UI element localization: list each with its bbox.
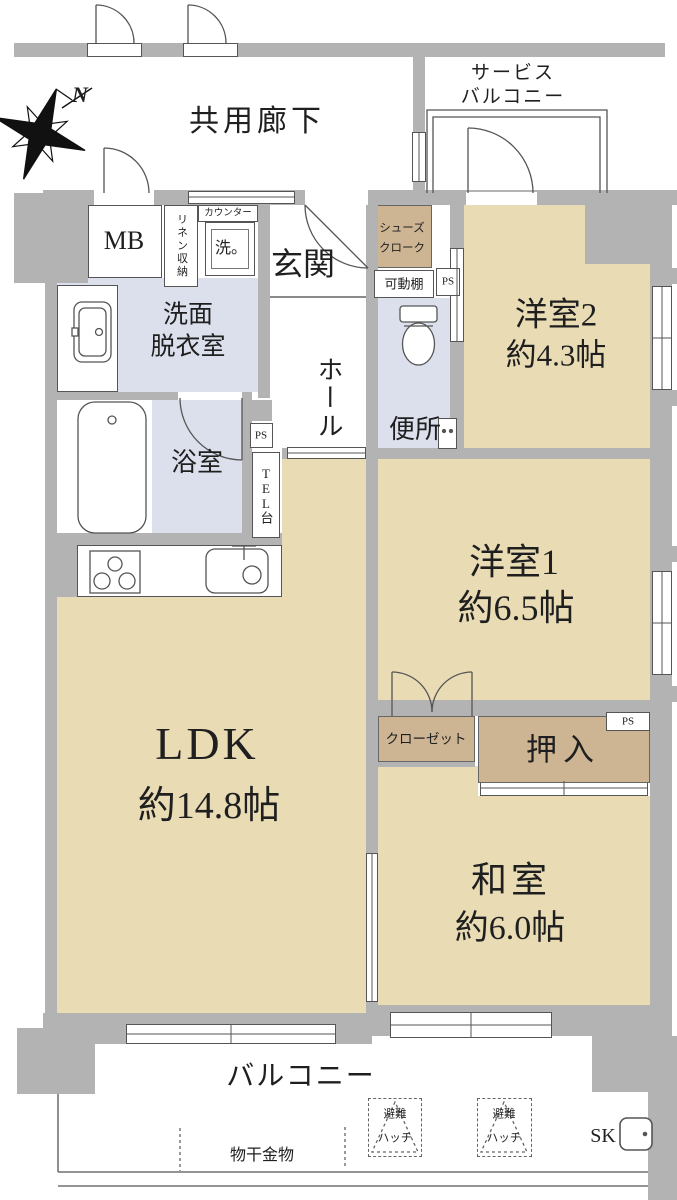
wall-kitchen-end <box>57 545 77 597</box>
service-balcony-door <box>468 128 533 193</box>
washer-label: 洗。 <box>215 241 247 257</box>
washitsu-ldk-sliding-door <box>366 853 378 1002</box>
escape-hatch-1 <box>368 1098 422 1157</box>
washitsu-balcony-window <box>390 1012 552 1038</box>
wall-right-stub3 <box>650 546 677 562</box>
service-balcony-label-1: サービス <box>471 64 555 83</box>
bath-door-opening <box>178 392 242 400</box>
floor-shoes-closet <box>372 205 432 268</box>
tel-stand-label: TEL台 <box>260 466 273 524</box>
wall-genkan-left <box>258 205 270 398</box>
vanity-counter <box>57 285 118 392</box>
wall-right-stub2 <box>650 390 677 406</box>
ldk-name-label: LDK <box>155 721 259 767</box>
hatch2-label-1: 避難 <box>493 1109 516 1121</box>
mb-door-opening <box>94 190 154 205</box>
wall-balcony-left-block <box>17 1028 95 1094</box>
washroom-label-1: 洗面 <box>163 303 213 328</box>
service-balcony-door-opening <box>466 192 537 205</box>
room1-name-label: 洋室1 <box>469 544 559 580</box>
counter-window <box>188 191 295 204</box>
floor-washitsu-a <box>372 766 478 1008</box>
bath-label: 浴室 <box>171 450 223 476</box>
compass-north-label: N <box>72 84 88 106</box>
wall-right-stub1 <box>650 268 677 284</box>
wall-hall-right <box>366 205 378 459</box>
corridor-door-2 <box>188 5 226 43</box>
ps-label-1: PS <box>442 277 454 288</box>
genkan-label: 玄関 <box>271 248 335 280</box>
sk-label: SK <box>590 1126 616 1146</box>
hall-ldk-sliding-door <box>287 447 366 459</box>
wall-ps-gray-box <box>252 400 272 421</box>
counter-label: カウンター <box>204 209 252 219</box>
corridor-door-1 <box>96 5 134 43</box>
balcony-label: バルコニー <box>226 1063 375 1091</box>
escape-hatch-2 <box>477 1098 532 1157</box>
corridor-door-opening-1 <box>87 43 142 57</box>
wall-balcony-right-block <box>592 1036 677 1092</box>
wall-kitchen-band <box>57 533 282 545</box>
balcony-railing <box>58 1094 648 1186</box>
service-balcony-label-2: バルコニー <box>461 88 566 107</box>
room1-window <box>652 571 672 675</box>
mb-label: MB <box>104 228 144 254</box>
corridor-door-opening-2 <box>183 43 238 57</box>
service-balcony-window <box>412 132 426 182</box>
shoes-closet-label-2: クローク <box>379 243 425 255</box>
oshiire-sliding-door <box>480 781 648 796</box>
floor-ldk-lobe <box>282 459 366 545</box>
washitsu-name-label: 和室 <box>471 862 551 898</box>
service-balcony-railing <box>427 110 607 193</box>
movable-shelf-label: 可動棚 <box>384 278 423 291</box>
washroom-label-2: 脱衣室 <box>150 335 225 360</box>
floor-bath-tub-area <box>57 400 152 535</box>
hall-label: ホール <box>315 356 341 440</box>
ldk-size-label: 約14.8帖 <box>138 787 281 825</box>
floor-plan: N 共用廊下 サービス バルコニー MB リネン収納 カウンター 洗。 玄関 シ… <box>0 0 677 1200</box>
floor-washitsu-b <box>478 796 650 1008</box>
wall-bath-right <box>242 398 252 538</box>
floor-ldk <box>57 545 366 1013</box>
ps-label-2: PS <box>255 431 267 442</box>
drying-fixture-label: 物干金物 <box>230 1148 294 1164</box>
room2-window <box>652 286 672 390</box>
room2-size-label: 約4.3帖 <box>506 340 607 371</box>
wall-balcony-right <box>648 1092 677 1200</box>
wall-left <box>45 283 57 1030</box>
wall-room2-notch <box>585 200 650 264</box>
kitchen-counter <box>77 545 282 597</box>
shoes-closet-label-1: シューズ <box>379 223 424 235</box>
genkan-door-opening <box>305 190 368 205</box>
wall-closet-bottom <box>378 762 475 767</box>
ldk-balcony-window <box>126 1024 336 1044</box>
linen-label: リネン収納 <box>176 214 187 279</box>
room1-size-label: 約6.5帖 <box>457 590 574 626</box>
oshiire-label: 押入 <box>526 735 600 766</box>
hatch1-label-2: ハッチ <box>378 1133 413 1145</box>
toilet-label: 便所 <box>389 417 441 443</box>
room2-name-label: 洋室2 <box>515 300 598 333</box>
hatch2-label-2: ハッチ <box>487 1133 522 1145</box>
wall-left-chunk <box>14 193 88 283</box>
closet-label: クローゼット <box>386 732 467 746</box>
washitsu-size-label: 約6.0帖 <box>455 912 566 946</box>
ps-label-3: PS <box>622 717 634 728</box>
mb-door <box>104 148 149 193</box>
hatch1-label-1: 避難 <box>384 1109 407 1121</box>
genkan-step-line <box>270 296 366 298</box>
corridor-label: 共用廊下 <box>189 107 325 137</box>
